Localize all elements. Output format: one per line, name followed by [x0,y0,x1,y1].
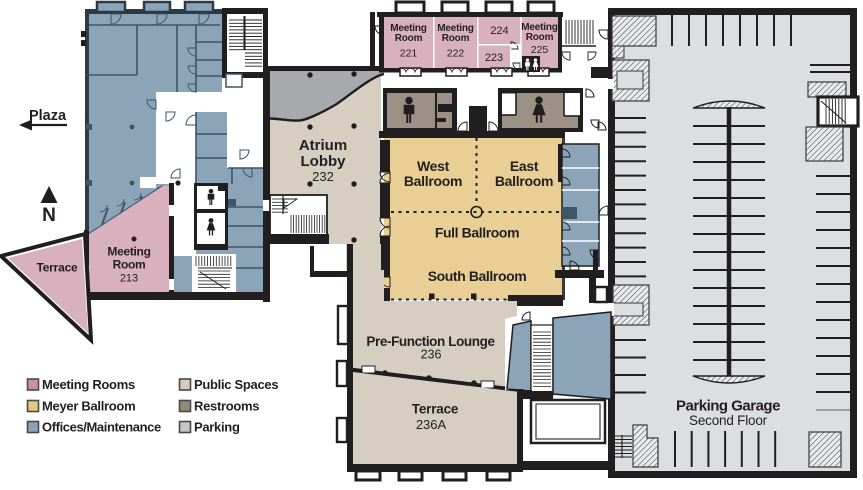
svg-text:223: 223 [485,52,503,64]
svg-text:Lobby: Lobby [301,153,347,170]
svg-text:Room: Room [395,33,423,44]
svg-text:224: 224 [490,25,508,37]
svg-text:Terrace: Terrace [412,402,459,417]
svg-text:Ballroom: Ballroom [404,173,462,189]
svg-text:Plaza: Plaza [29,108,67,124]
svg-text:213: 213 [120,273,138,285]
svg-text:Second Floor: Second Floor [689,413,768,428]
svg-text:Room: Room [526,32,554,43]
svg-text:Parking: Parking [194,420,240,435]
svg-text:236A: 236A [416,417,447,432]
svg-text:Ballroom: Ballroom [495,173,553,189]
svg-text:Meyer Ballroom: Meyer Ballroom [42,399,135,414]
svg-text:East: East [510,158,539,174]
svg-text:Meeting: Meeting [107,245,150,259]
svg-text:Room: Room [442,33,470,44]
svg-text:225: 225 [531,44,549,56]
svg-text:Public Spaces: Public Spaces [194,377,278,392]
svg-text:Offices/Maintenance: Offices/Maintenance [42,420,161,435]
svg-text:Room: Room [113,258,146,272]
svg-text:Restrooms: Restrooms [194,399,259,414]
svg-text:Terrace: Terrace [36,261,78,275]
svg-text:Full Ballroom: Full Ballroom [435,225,519,241]
svg-text:232: 232 [312,169,334,184]
svg-text:N: N [42,205,56,226]
svg-text:Parking Garage: Parking Garage [676,398,780,415]
svg-text:South Ballroom: South Ballroom [428,268,527,284]
svg-text:221: 221 [400,48,418,60]
svg-text:222: 222 [447,48,465,60]
svg-text:Atrium: Atrium [299,137,347,154]
svg-text:236: 236 [421,348,442,362]
svg-text:West: West [417,158,450,174]
svg-text:Meeting Rooms: Meeting Rooms [42,377,135,392]
